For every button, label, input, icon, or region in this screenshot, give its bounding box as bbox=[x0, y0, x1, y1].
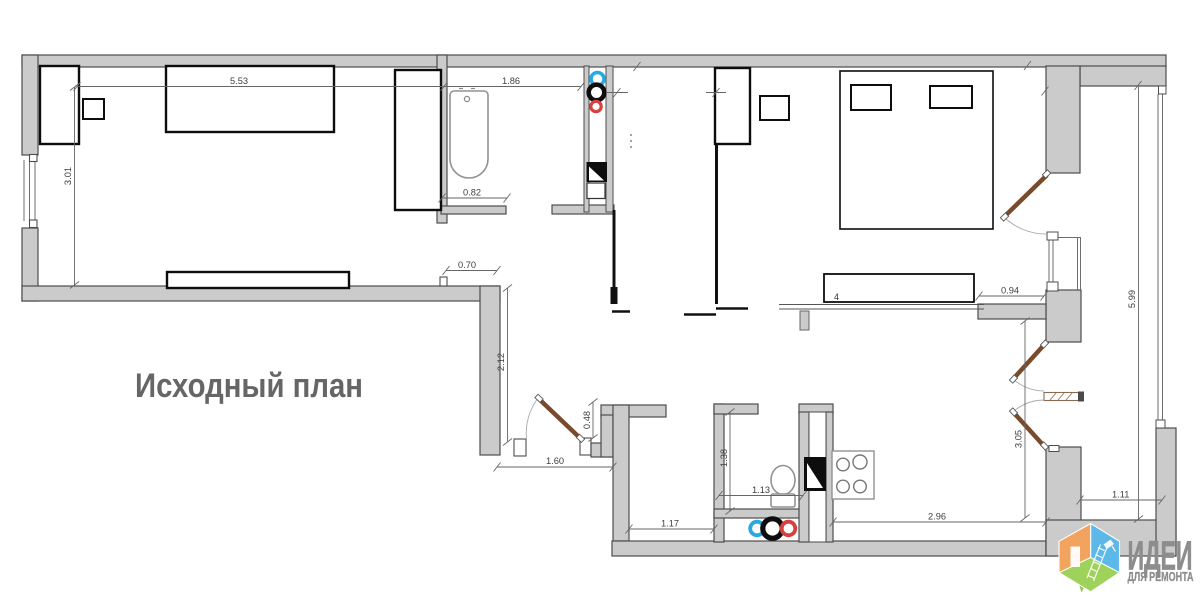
svg-text:2.12: 2.12 bbox=[496, 353, 506, 371]
svg-text:Исходный план: Исходный план bbox=[135, 367, 363, 405]
svg-text:2.96: 2.96 bbox=[928, 512, 946, 522]
svg-text:1.13: 1.13 bbox=[752, 485, 770, 495]
svg-text:0.94: 0.94 bbox=[1001, 286, 1019, 296]
svg-text:1.11: 1.11 bbox=[1112, 490, 1129, 500]
svg-text:1.60: 1.60 bbox=[546, 456, 564, 466]
svg-text:3.05: 3.05 bbox=[1014, 430, 1024, 448]
svg-text:0.82: 0.82 bbox=[463, 188, 481, 198]
svg-text:1.38: 1.38 bbox=[719, 449, 729, 467]
svg-text:5.53: 5.53 bbox=[230, 76, 248, 86]
svg-text:ДЛЯ РЕМОНТА: ДЛЯ РЕМОНТА bbox=[1128, 569, 1194, 584]
svg-text:5.99: 5.99 bbox=[1127, 290, 1137, 308]
svg-text:4: 4 bbox=[834, 292, 839, 302]
svg-text:0.48: 0.48 bbox=[582, 411, 592, 429]
svg-text:1.86: 1.86 bbox=[502, 76, 520, 86]
svg-text:0.70: 0.70 bbox=[458, 260, 476, 270]
svg-text:3.01: 3.01 bbox=[63, 167, 73, 185]
svg-text:1.17: 1.17 bbox=[661, 519, 679, 529]
